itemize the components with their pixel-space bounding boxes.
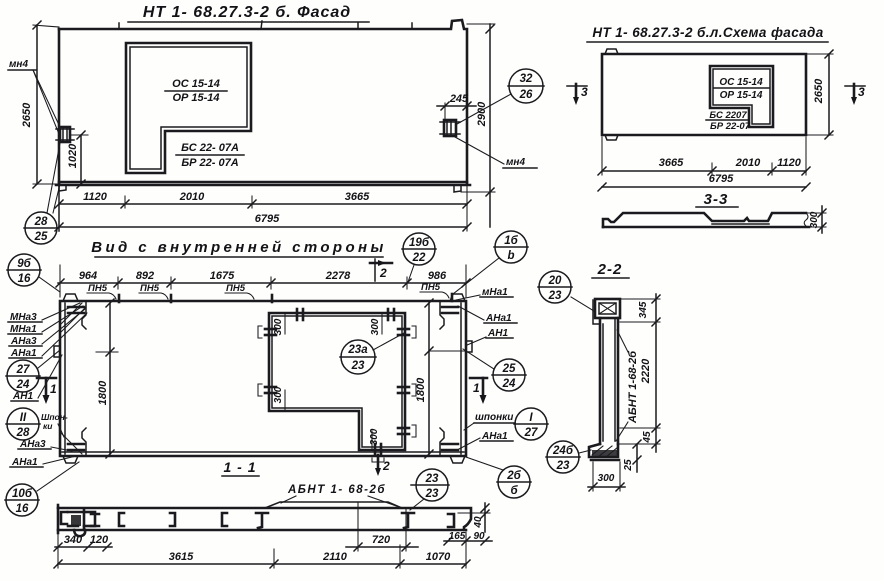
svg-text:1б: 1б [504,235,518,247]
svg-text:245: 245 [449,93,469,105]
svg-text:986: 986 [428,270,447,282]
svg-text:45: 45 [642,431,653,444]
svg-text:ПН5: ПН5 [421,282,441,293]
svg-text:10б: 10б [12,488,33,500]
svg-text:ОС 15-14: ОС 15-14 [719,77,763,88]
svg-text:2б: 2б [506,470,521,482]
svg-text:ОС 15-14: ОС 15-14 [172,78,220,90]
svg-text:24: 24 [16,379,30,391]
svg-text:26: 26 [519,89,533,101]
svg-text:АБНТ 1-68-2б: АБНТ 1-68-2б [627,350,639,424]
svg-text:1800: 1800 [97,380,109,405]
svg-text:1070: 1070 [426,551,451,563]
svg-text:28: 28 [34,216,48,228]
svg-text:2900: 2900 [476,101,488,127]
svg-text:мн4: мн4 [9,59,28,70]
svg-text:ОР 15-14: ОР 15-14 [172,92,219,104]
svg-text:1675: 1675 [210,270,235,282]
svg-text:340: 340 [64,534,83,546]
svg-text:I: I [529,412,533,424]
svg-text:ПН5: ПН5 [140,283,160,294]
svg-text:300: 300 [369,428,380,445]
svg-text:964: 964 [79,270,97,282]
svg-text:2010: 2010 [179,191,205,203]
svg-text:6795: 6795 [255,213,280,225]
svg-text:25: 25 [623,459,634,472]
svg-text:40: 40 [473,516,484,529]
svg-text:АБНТ 1- 68-2б: АБНТ 1- 68-2б [287,484,386,496]
svg-text:300: 300 [273,386,284,403]
svg-text:16: 16 [18,273,31,285]
svg-text:2: 2 [382,459,390,473]
svg-text:БР 22-07: БР 22-07 [710,121,751,132]
svg-text:ПН5: ПН5 [88,283,108,294]
svg-text:6795: 6795 [709,173,734,185]
svg-text:1: 1 [473,381,480,395]
svg-text:345: 345 [638,301,649,318]
svg-text:300: 300 [370,318,381,335]
svg-text:БР 22- 07А: БР 22- 07А [181,157,238,169]
svg-text:1: 1 [50,382,57,396]
svg-text:2220: 2220 [640,358,652,384]
svg-text:2278: 2278 [325,270,351,282]
svg-text:2: 2 [379,266,387,280]
svg-text:b: b [507,250,514,262]
svg-text:2010: 2010 [735,157,761,169]
svg-text:2110: 2110 [322,551,348,563]
svg-text:б: б [510,485,518,497]
svg-text:300: 300 [273,318,284,335]
svg-text:БС 22- 07А: БС 22- 07А [181,142,239,154]
svg-text:23: 23 [425,473,439,485]
svg-text:90: 90 [473,531,485,542]
svg-text:1120: 1120 [83,191,108,203]
svg-text:2650: 2650 [813,78,825,104]
svg-text:3: 3 [581,85,588,99]
svg-text:1800: 1800 [415,377,427,402]
svg-text:1 - 1: 1 - 1 [223,459,256,475]
svg-text:720: 720 [372,534,391,546]
svg-text:28: 28 [16,427,30,439]
svg-text:23: 23 [556,460,570,472]
svg-text:1020: 1020 [67,143,79,168]
svg-text:25: 25 [502,363,516,375]
svg-text:ПН5: ПН5 [226,283,246,294]
svg-text:165: 165 [449,531,466,542]
svg-text:шпонки: шпонки [475,412,513,423]
svg-text:2650: 2650 [21,102,33,128]
svg-text:НТ 1- 68.27.3-2 б. Фасад: НТ 1- 68.27.3-2 б. Фасад [143,4,351,21]
svg-text:22: 22 [412,252,426,264]
svg-text:24б: 24б [552,445,574,457]
svg-text:24: 24 [502,378,516,390]
svg-text:25: 25 [34,231,48,243]
svg-text:2-2: 2-2 [597,261,623,278]
svg-text:19б: 19б [409,237,430,249]
svg-text:НТ 1- 68.27.3-2 б.л.Схема фаса: НТ 1- 68.27.3-2 б.л.Схема фасада [592,25,823,40]
svg-text:32: 32 [520,73,533,85]
svg-text:23а: 23а [347,344,368,356]
svg-text:300: 300 [809,211,820,228]
svg-text:3615: 3615 [169,551,194,563]
svg-text:23: 23 [548,290,562,302]
svg-text:27: 27 [524,427,538,439]
svg-text:мн4: мн4 [506,157,525,168]
svg-text:Вид с внутренней стороны: Вид с внутренней стороны [91,239,386,256]
svg-text:300: 300 [598,473,615,484]
svg-text:20: 20 [548,275,562,287]
svg-text:ки: ки [43,421,53,431]
svg-text:27: 27 [16,364,30,376]
svg-text:1120: 1120 [777,157,802,169]
svg-text:3665: 3665 [659,157,684,169]
svg-text:23: 23 [351,360,365,372]
svg-text:3-3: 3-3 [704,191,729,208]
svg-text:16: 16 [16,503,29,515]
svg-text:II: II [20,412,27,424]
svg-text:892: 892 [136,270,154,282]
svg-text:3665: 3665 [345,191,370,203]
svg-text:ОР 15-14: ОР 15-14 [720,90,763,101]
svg-text:9б: 9б [17,258,31,270]
svg-text:3: 3 [858,85,865,99]
svg-text:120: 120 [90,534,109,546]
svg-text:23: 23 [425,488,439,500]
